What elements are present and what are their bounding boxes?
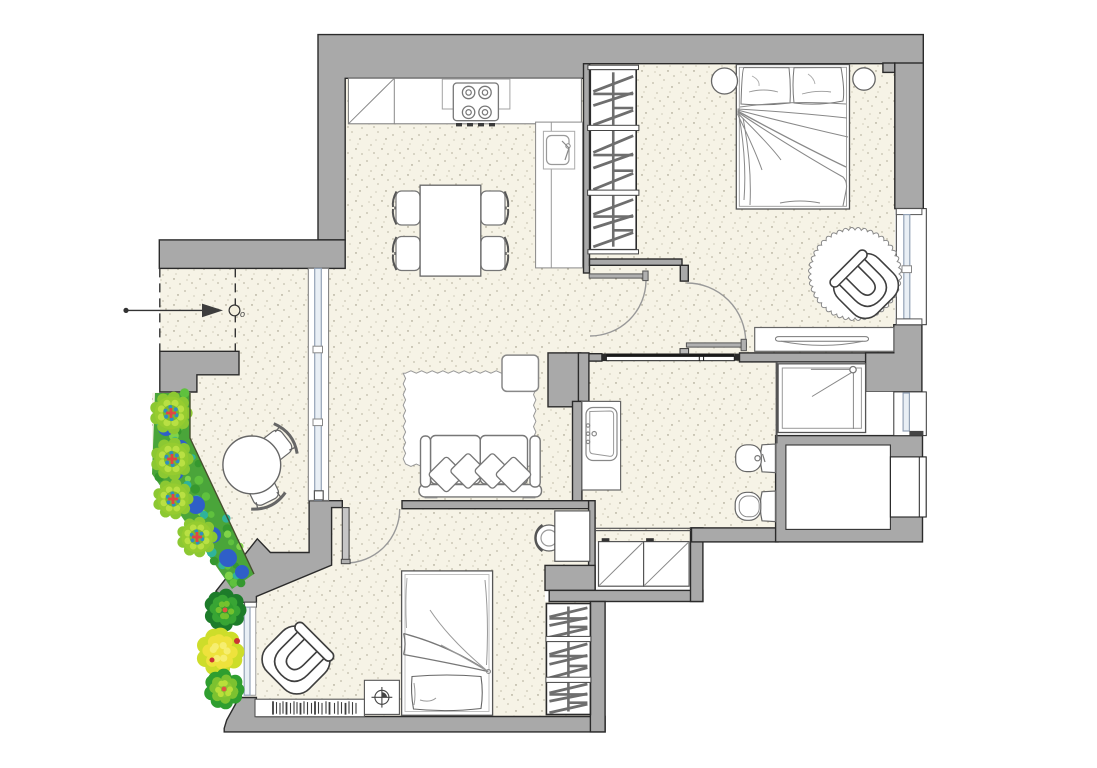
svg-text:o: o — [240, 309, 245, 319]
